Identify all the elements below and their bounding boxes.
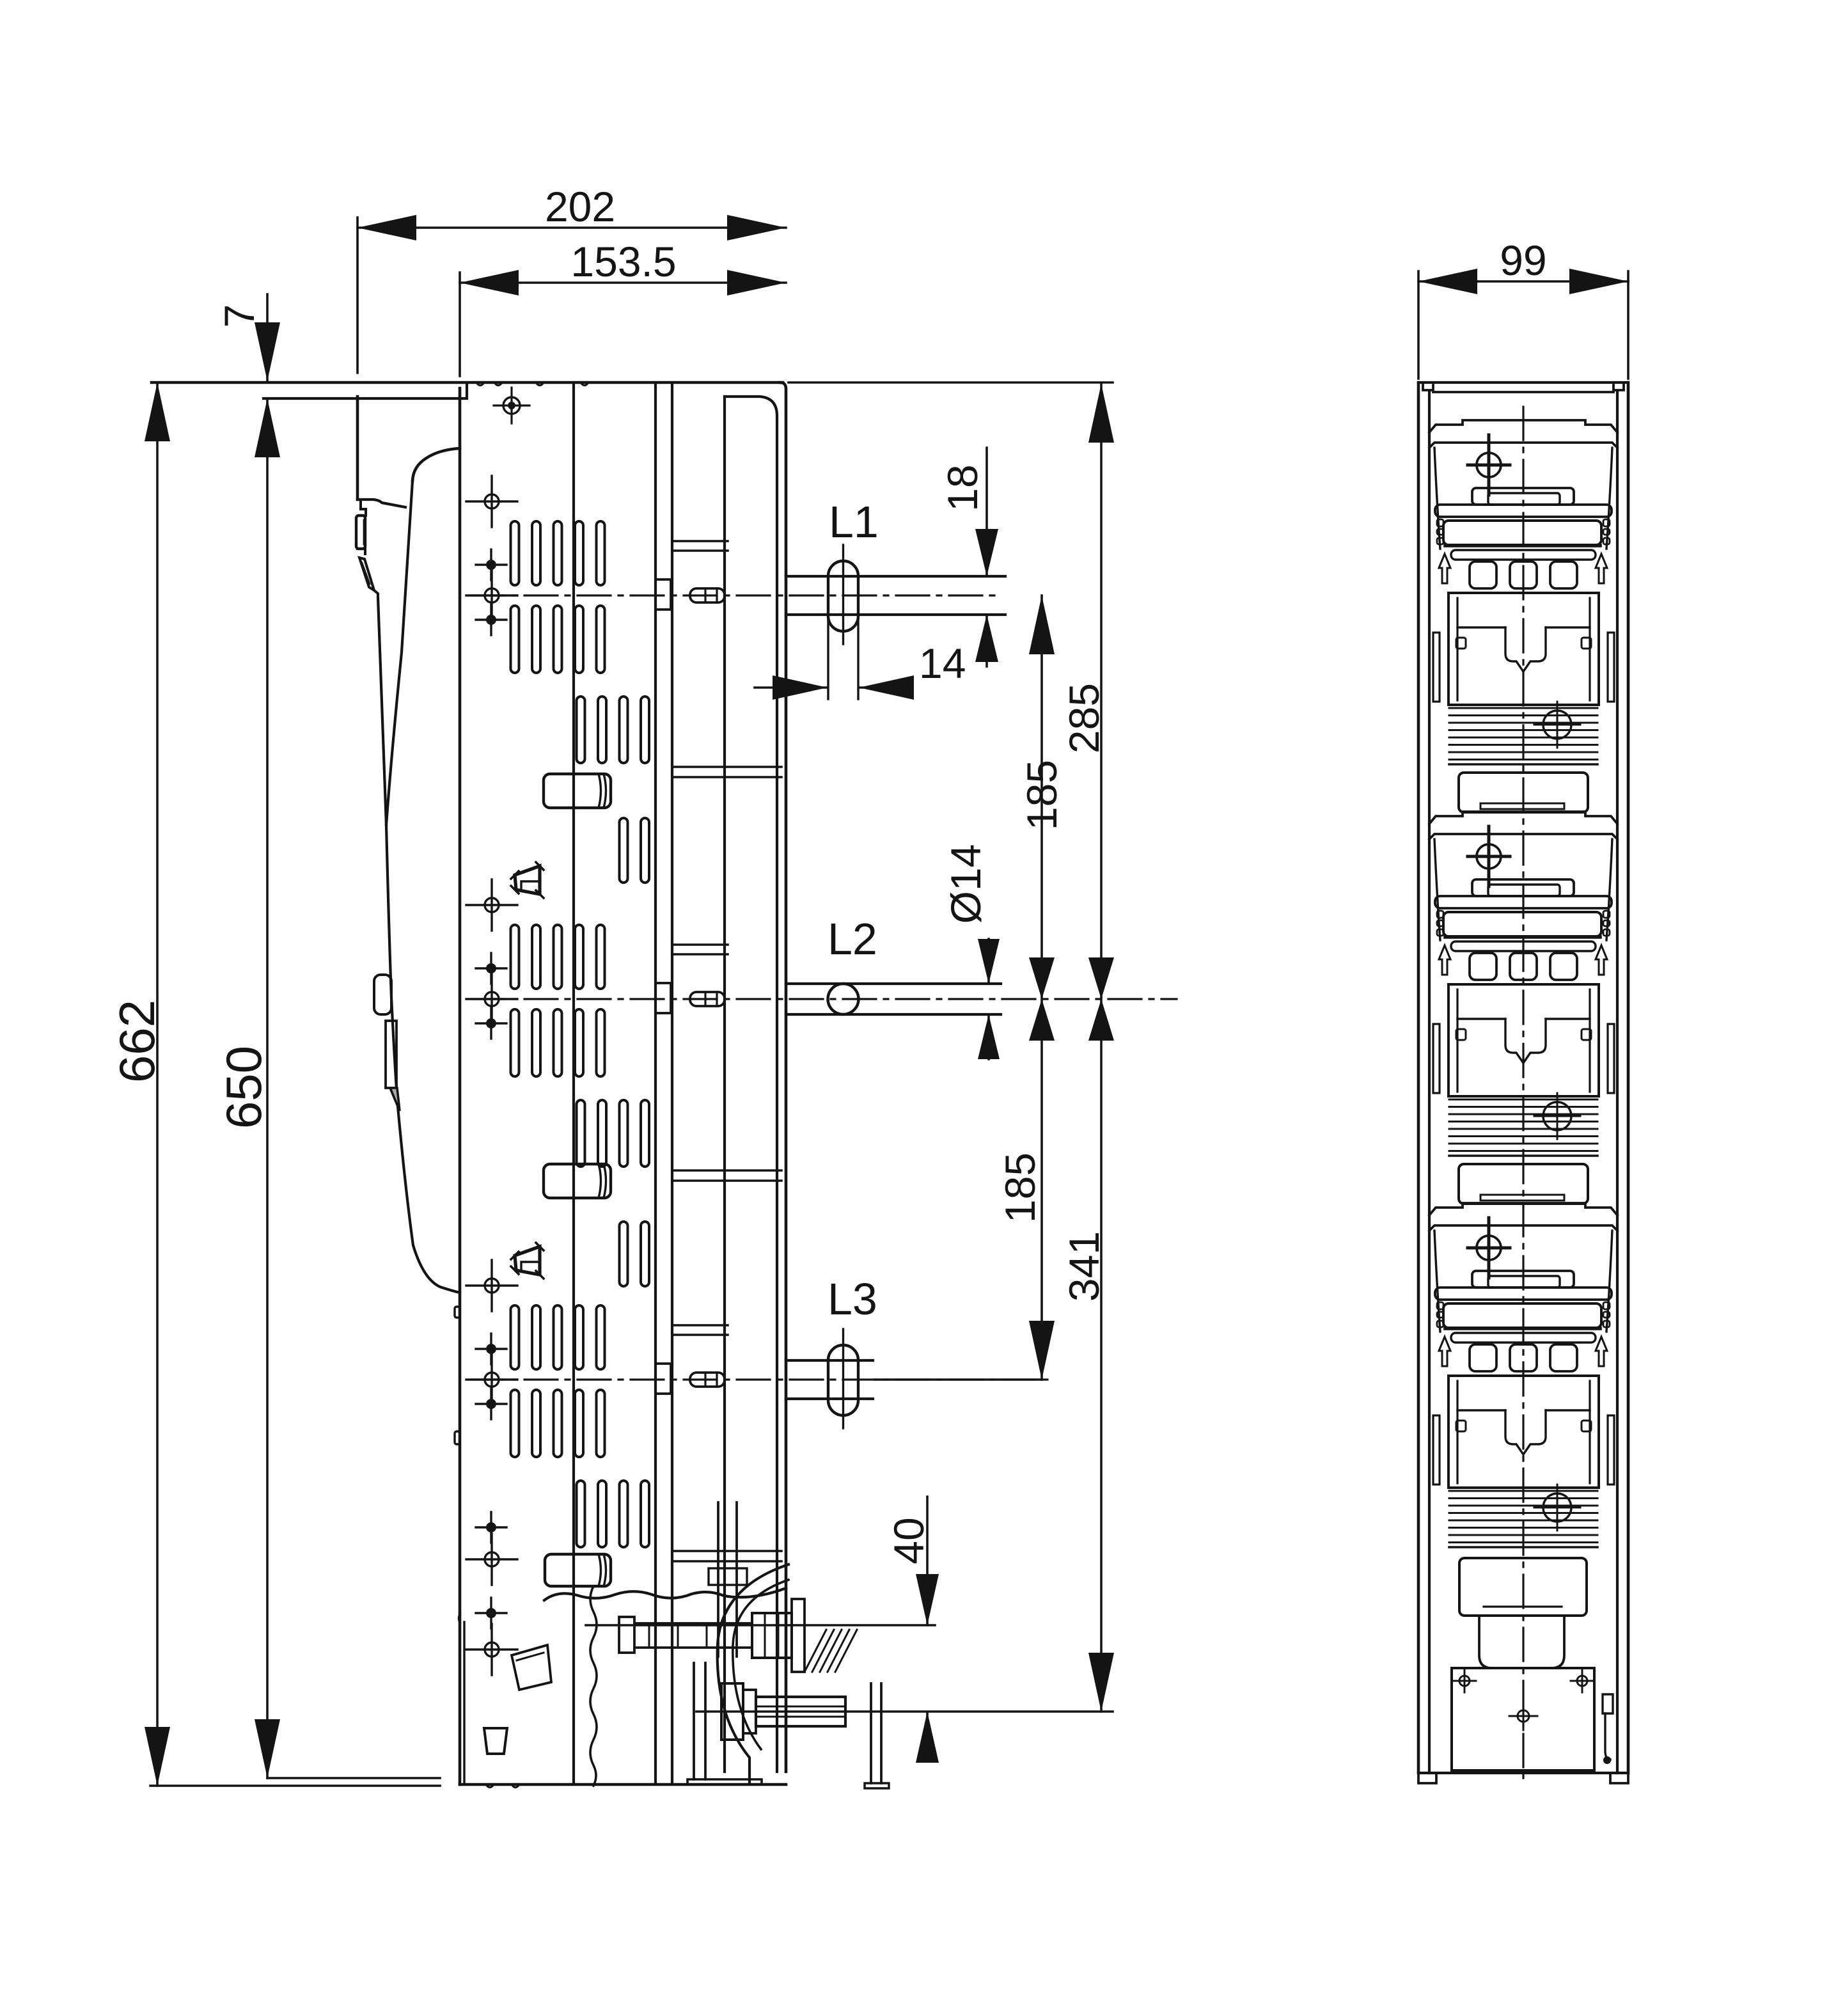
svg-text:18: 18 xyxy=(939,464,986,511)
svg-text:662: 662 xyxy=(109,1000,165,1083)
svg-text:L2: L2 xyxy=(828,914,877,964)
svg-text:Ø14: Ø14 xyxy=(942,844,989,924)
svg-text:40: 40 xyxy=(885,1517,932,1564)
svg-text:153.5: 153.5 xyxy=(570,238,676,285)
svg-text:285: 285 xyxy=(1060,683,1108,753)
svg-text:650: 650 xyxy=(216,1046,272,1129)
svg-text:185: 185 xyxy=(1018,760,1065,830)
svg-text:L3: L3 xyxy=(828,1274,877,1324)
svg-text:341: 341 xyxy=(1060,1231,1108,1302)
svg-text:7: 7 xyxy=(216,304,263,328)
svg-text:L1: L1 xyxy=(829,497,879,547)
svg-text:185: 185 xyxy=(996,1153,1044,1223)
svg-text:202: 202 xyxy=(545,183,615,230)
svg-text:14: 14 xyxy=(919,640,966,687)
svg-text:99: 99 xyxy=(1500,237,1546,284)
